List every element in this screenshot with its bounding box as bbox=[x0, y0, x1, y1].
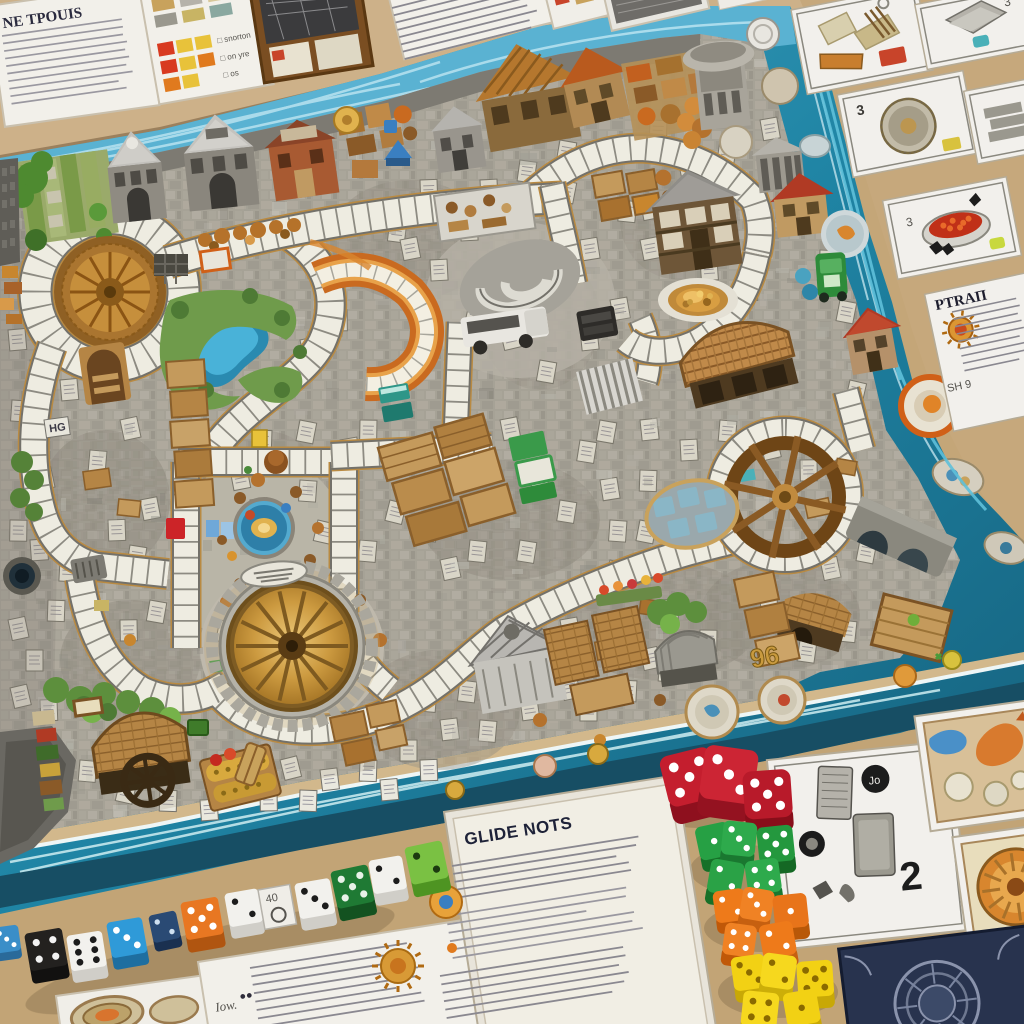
svg-text:●●: ●● bbox=[239, 989, 254, 1003]
svg-text:2: 2 bbox=[898, 854, 925, 900]
svg-text:Jo: Jo bbox=[868, 774, 881, 787]
svg-text:HG: HG bbox=[49, 421, 67, 435]
svg-text:40: 40 bbox=[265, 892, 279, 906]
svg-text:96: 96 bbox=[748, 639, 782, 674]
